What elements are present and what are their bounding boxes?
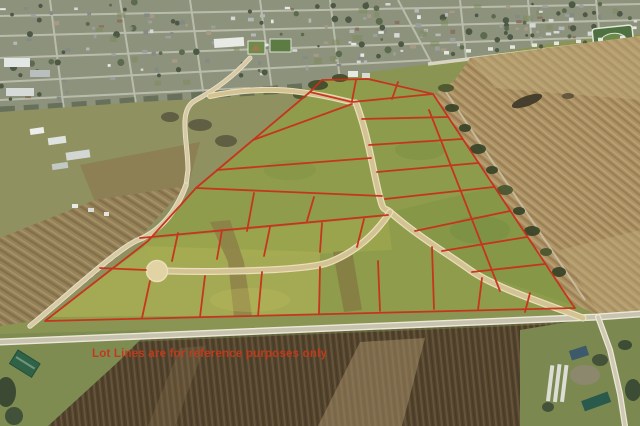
disclaimer-text: Lot Lines are for reference purposes onl… — [92, 348, 327, 360]
cul-de-sac-bulb — [147, 261, 168, 282]
aerial-photo: Lot Lines are for reference purposes onl… — [0, 0, 640, 426]
